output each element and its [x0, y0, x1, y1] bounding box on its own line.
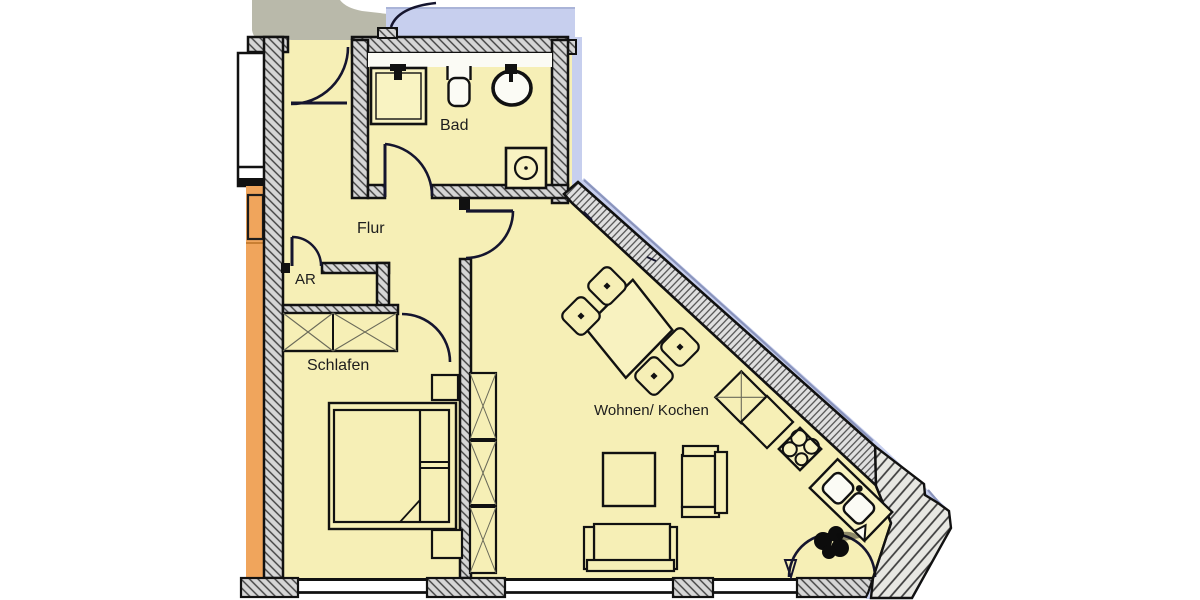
svg-text:Schlafen: Schlafen [307, 357, 369, 374]
svg-text:Wohnen/ Kochen: Wohnen/ Kochen [594, 402, 709, 419]
svg-text:AR: AR [295, 271, 316, 288]
svg-text:Flur: Flur [357, 220, 385, 237]
svg-text:Bad: Bad [440, 117, 468, 134]
